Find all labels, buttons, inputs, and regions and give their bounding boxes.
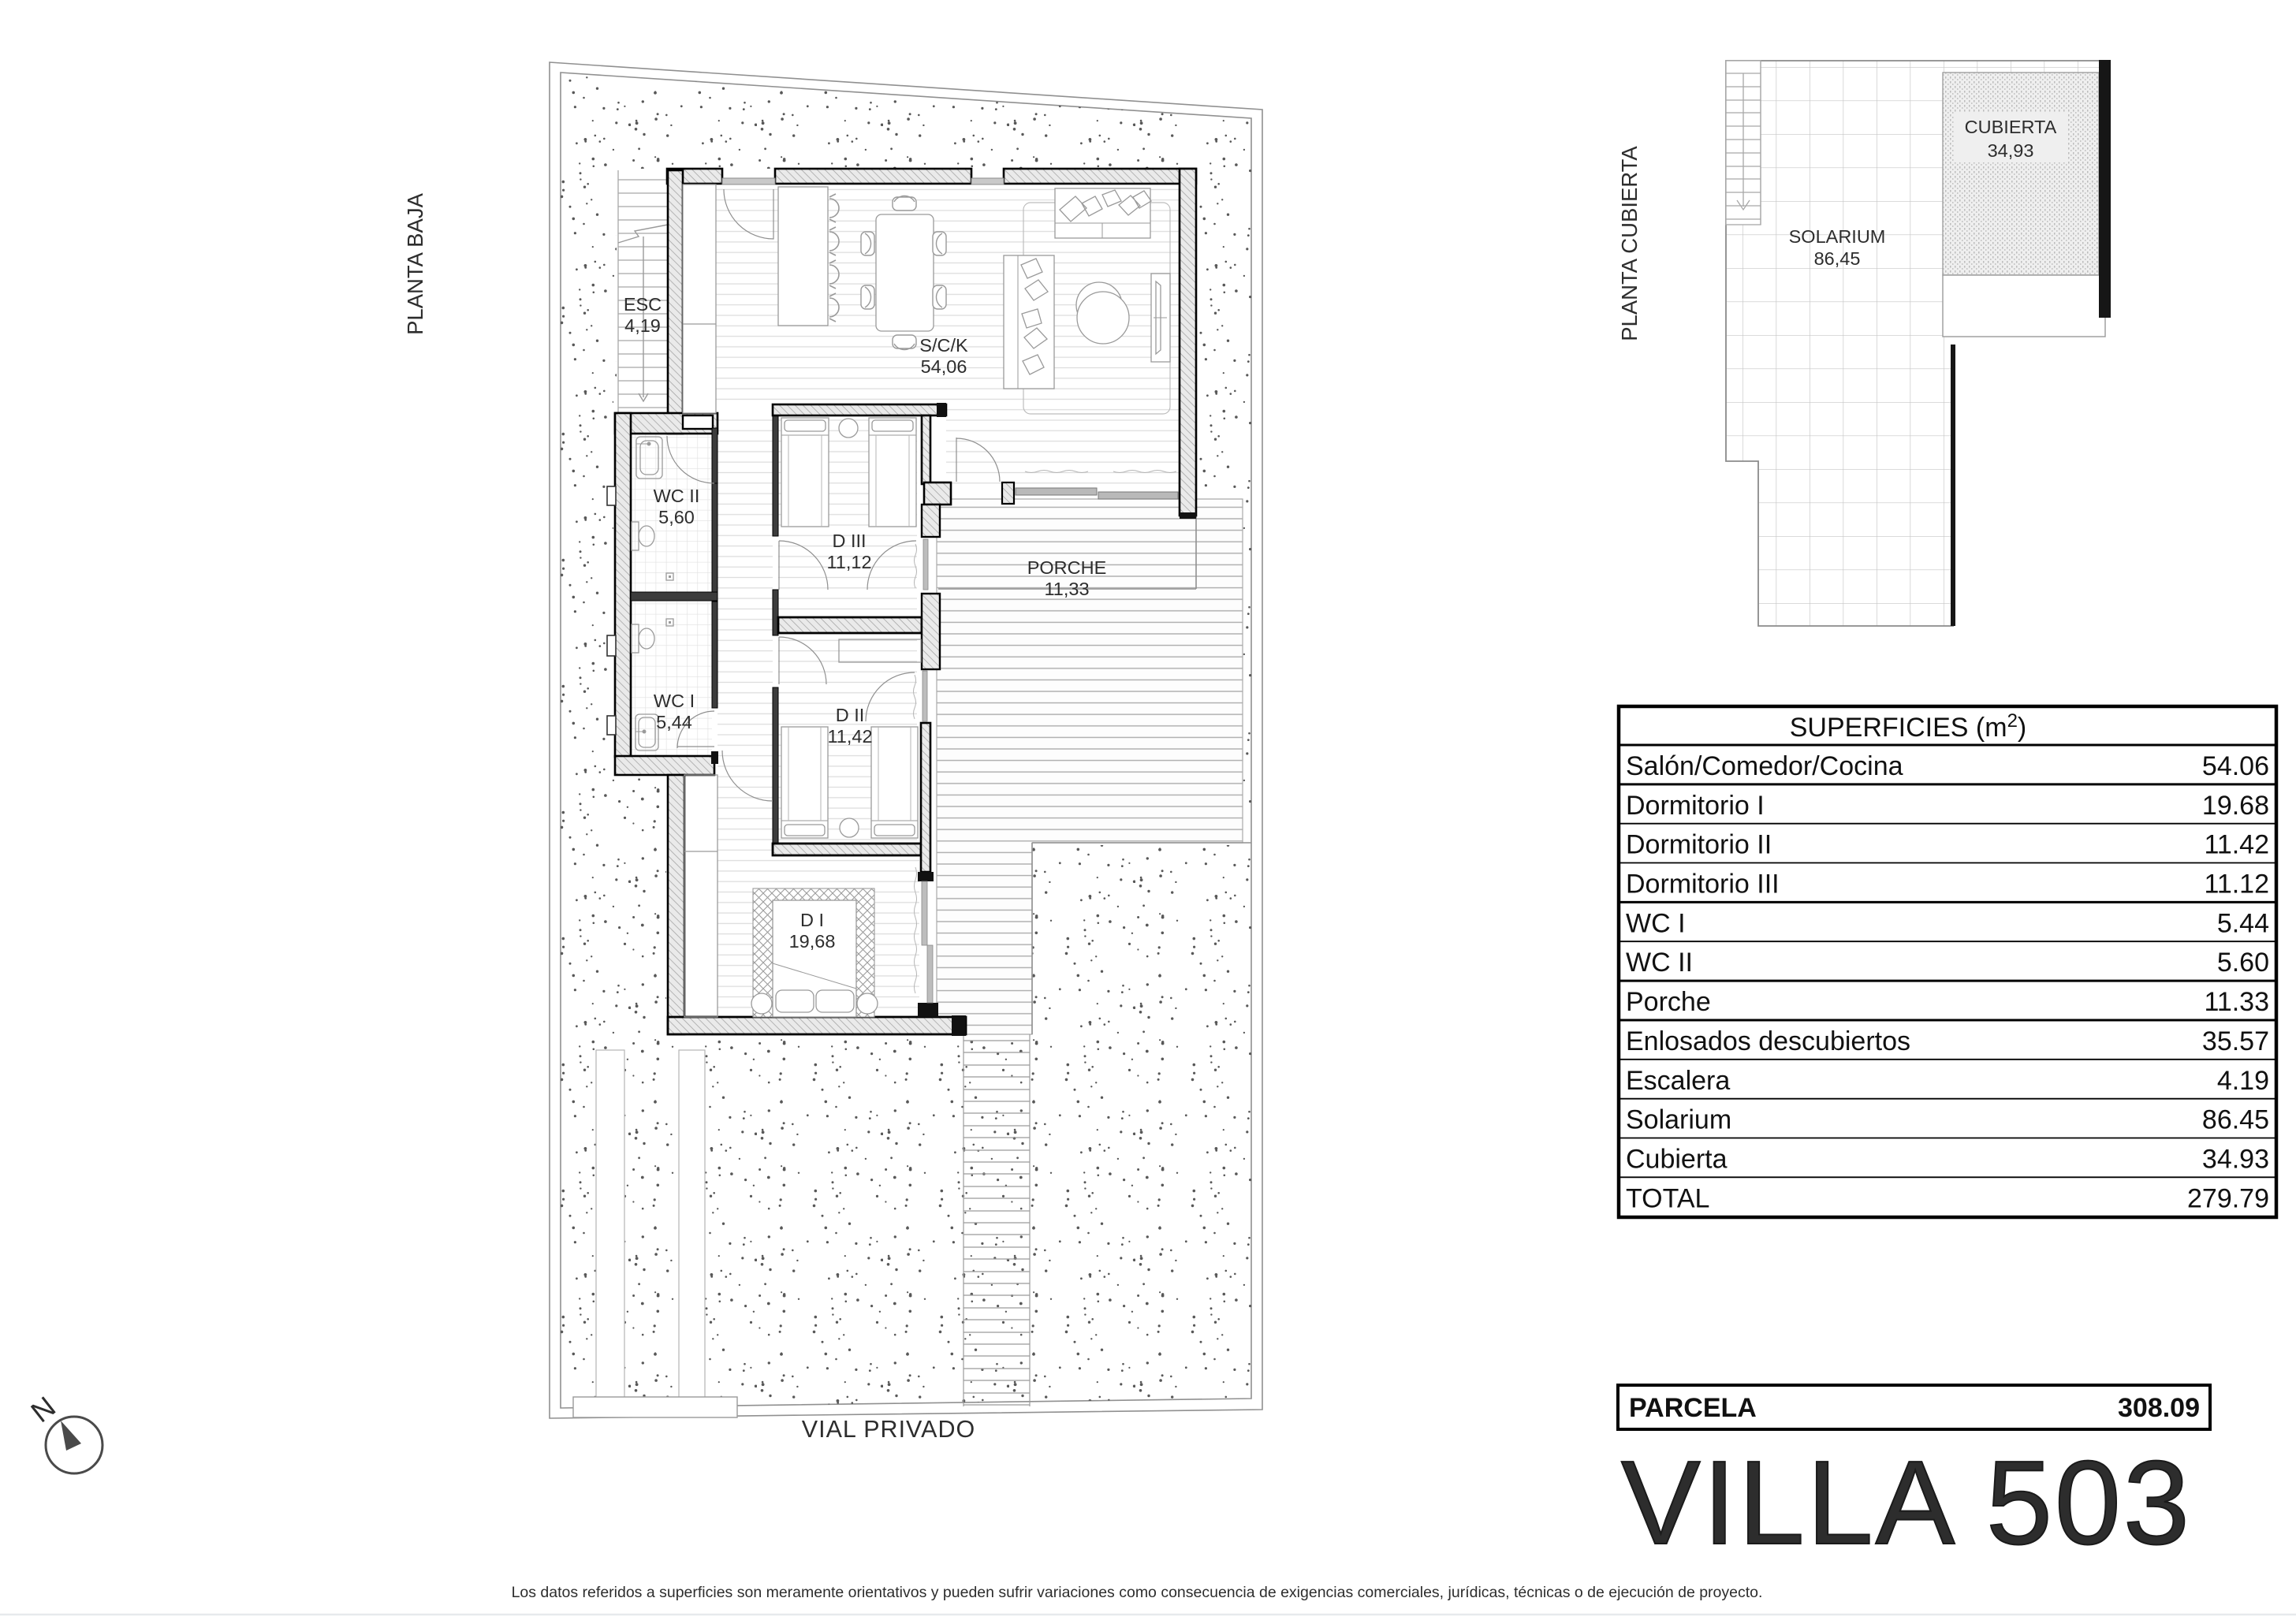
svg-text:34,93: 34,93: [1988, 140, 2034, 161]
svg-text:Salón/Comedor/Cocina: Salón/Comedor/Cocina: [1626, 751, 1903, 781]
svg-text:19.68: 19.68: [2202, 791, 2269, 821]
svg-text:WC I: WC I: [1626, 908, 1686, 938]
svg-text:Los datos referidos a superfic: Los datos referidos a superficies son me…: [512, 1584, 1763, 1601]
svg-text:PARCELA: PARCELA: [1629, 1393, 1757, 1423]
svg-text:Cubierta: Cubierta: [1626, 1145, 1728, 1175]
svg-text:Porche: Porche: [1626, 987, 1711, 1017]
svg-text:PLANTA CUBIERTA: PLANTA CUBIERTA: [1617, 146, 1642, 341]
svg-text:54,06: 54,06: [921, 356, 967, 377]
svg-text:11,42: 11,42: [827, 726, 872, 747]
svg-text:TOTAL: TOTAL: [1626, 1183, 1709, 1213]
svg-text:35.57: 35.57: [2202, 1026, 2269, 1056]
svg-text:5.44: 5.44: [2217, 908, 2269, 938]
svg-text:Dormitorio II: Dormitorio II: [1626, 830, 1772, 860]
svg-text:4.19: 4.19: [2217, 1066, 2269, 1096]
svg-text:VIAL PRIVADO: VIAL PRIVADO: [802, 1416, 975, 1443]
svg-text:WC II: WC II: [654, 486, 700, 506]
svg-text:D II: D II: [836, 705, 865, 725]
svg-text:D I: D I: [800, 910, 824, 930]
svg-text:86.45: 86.45: [2202, 1105, 2269, 1135]
svg-text:86,45: 86,45: [1814, 248, 1861, 269]
svg-text:VILLA 503: VILLA 503: [1621, 1436, 2192, 1569]
svg-text:PLANTA BAJA: PLANTA BAJA: [403, 192, 427, 334]
svg-text:11,33: 11,33: [1044, 579, 1089, 599]
svg-text:WC I: WC I: [654, 691, 695, 711]
svg-text:5,60: 5,60: [658, 507, 695, 527]
svg-text:Dormitorio III: Dormitorio III: [1626, 870, 1780, 900]
svg-text:19,68: 19,68: [789, 931, 836, 952]
svg-text:SUPERFICIES (m2): SUPERFICIES (m2): [1790, 710, 2027, 743]
svg-text:Enlosados descubiertos: Enlosados descubiertos: [1626, 1026, 1910, 1056]
svg-text:5,44: 5,44: [656, 712, 692, 732]
svg-text:54.06: 54.06: [2202, 751, 2269, 781]
svg-text:Solarium: Solarium: [1626, 1105, 1731, 1135]
svg-text:ESC: ESC: [624, 294, 662, 315]
svg-text:11,12: 11,12: [826, 552, 871, 572]
svg-text:11.33: 11.33: [2204, 987, 2269, 1017]
svg-text:D III: D III: [832, 531, 866, 551]
svg-text:Escalera: Escalera: [1626, 1066, 1730, 1096]
svg-text:11.42: 11.42: [2204, 830, 2269, 860]
svg-text:11.12: 11.12: [2204, 870, 2269, 900]
svg-text:4,19: 4,19: [624, 315, 661, 336]
svg-text:WC II: WC II: [1626, 948, 1693, 978]
svg-text:CUBIERTA: CUBIERTA: [1965, 117, 2057, 137]
svg-text:279.79: 279.79: [2187, 1183, 2269, 1213]
svg-text:S/C/K: S/C/K: [919, 335, 968, 356]
svg-text:5.60: 5.60: [2217, 948, 2269, 978]
svg-text:34.93: 34.93: [2202, 1145, 2269, 1175]
svg-text:PORCHE: PORCHE: [1027, 557, 1107, 578]
svg-text:308.09: 308.09: [2118, 1393, 2200, 1423]
svg-text:Dormitorio I: Dormitorio I: [1626, 791, 1765, 821]
svg-text:SOLARIUM: SOLARIUM: [1789, 226, 1886, 247]
